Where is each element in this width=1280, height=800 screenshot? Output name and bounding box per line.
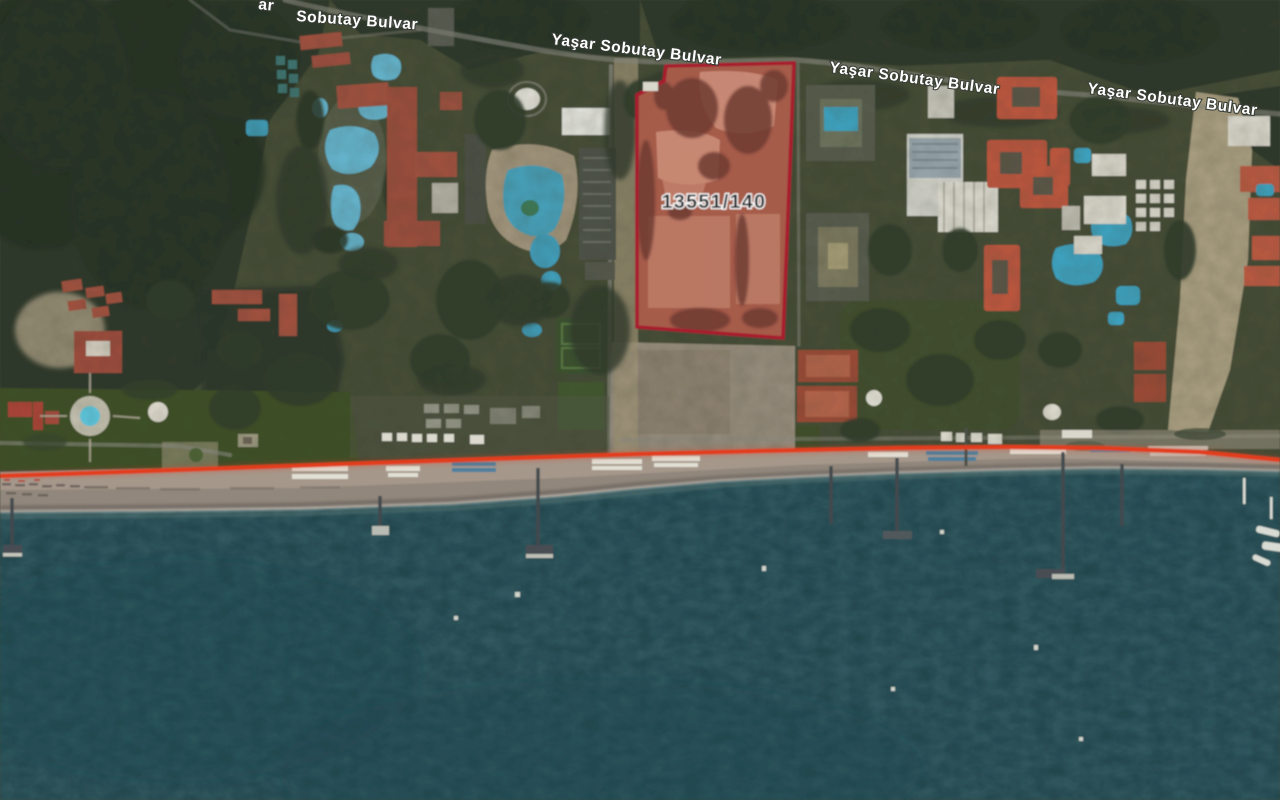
svg-text:ar: ar <box>258 0 276 15</box>
svg-text:13551/140: 13551/140 <box>662 191 767 213</box>
